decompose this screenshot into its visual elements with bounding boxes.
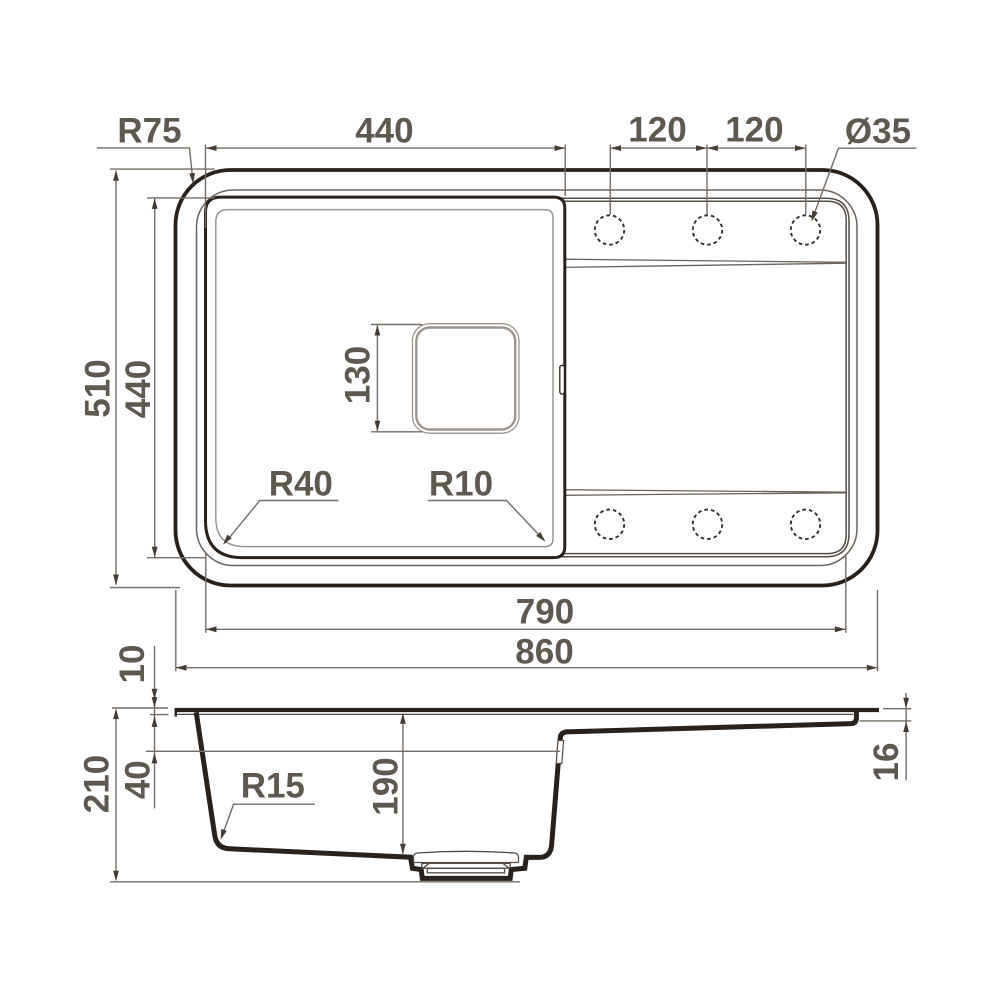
svg-text:790: 790: [516, 593, 574, 632]
svg-text:130: 130: [339, 346, 378, 404]
svg-text:440: 440: [355, 112, 413, 151]
svg-text:Ø35: Ø35: [845, 112, 911, 151]
svg-text:440: 440: [119, 360, 158, 418]
svg-text:120: 120: [628, 111, 686, 150]
svg-text:40: 40: [119, 760, 158, 799]
svg-text:R10: R10: [429, 465, 493, 504]
svg-text:860: 860: [515, 633, 573, 672]
svg-text:R15: R15: [241, 766, 305, 805]
svg-text:120: 120: [725, 111, 783, 150]
svg-text:16: 16: [867, 743, 906, 782]
svg-text:210: 210: [77, 755, 116, 813]
svg-text:R75: R75: [117, 112, 181, 151]
svg-text:10: 10: [113, 645, 152, 684]
svg-text:190: 190: [367, 757, 406, 815]
svg-text:510: 510: [79, 359, 118, 417]
svg-text:R40: R40: [269, 465, 333, 504]
